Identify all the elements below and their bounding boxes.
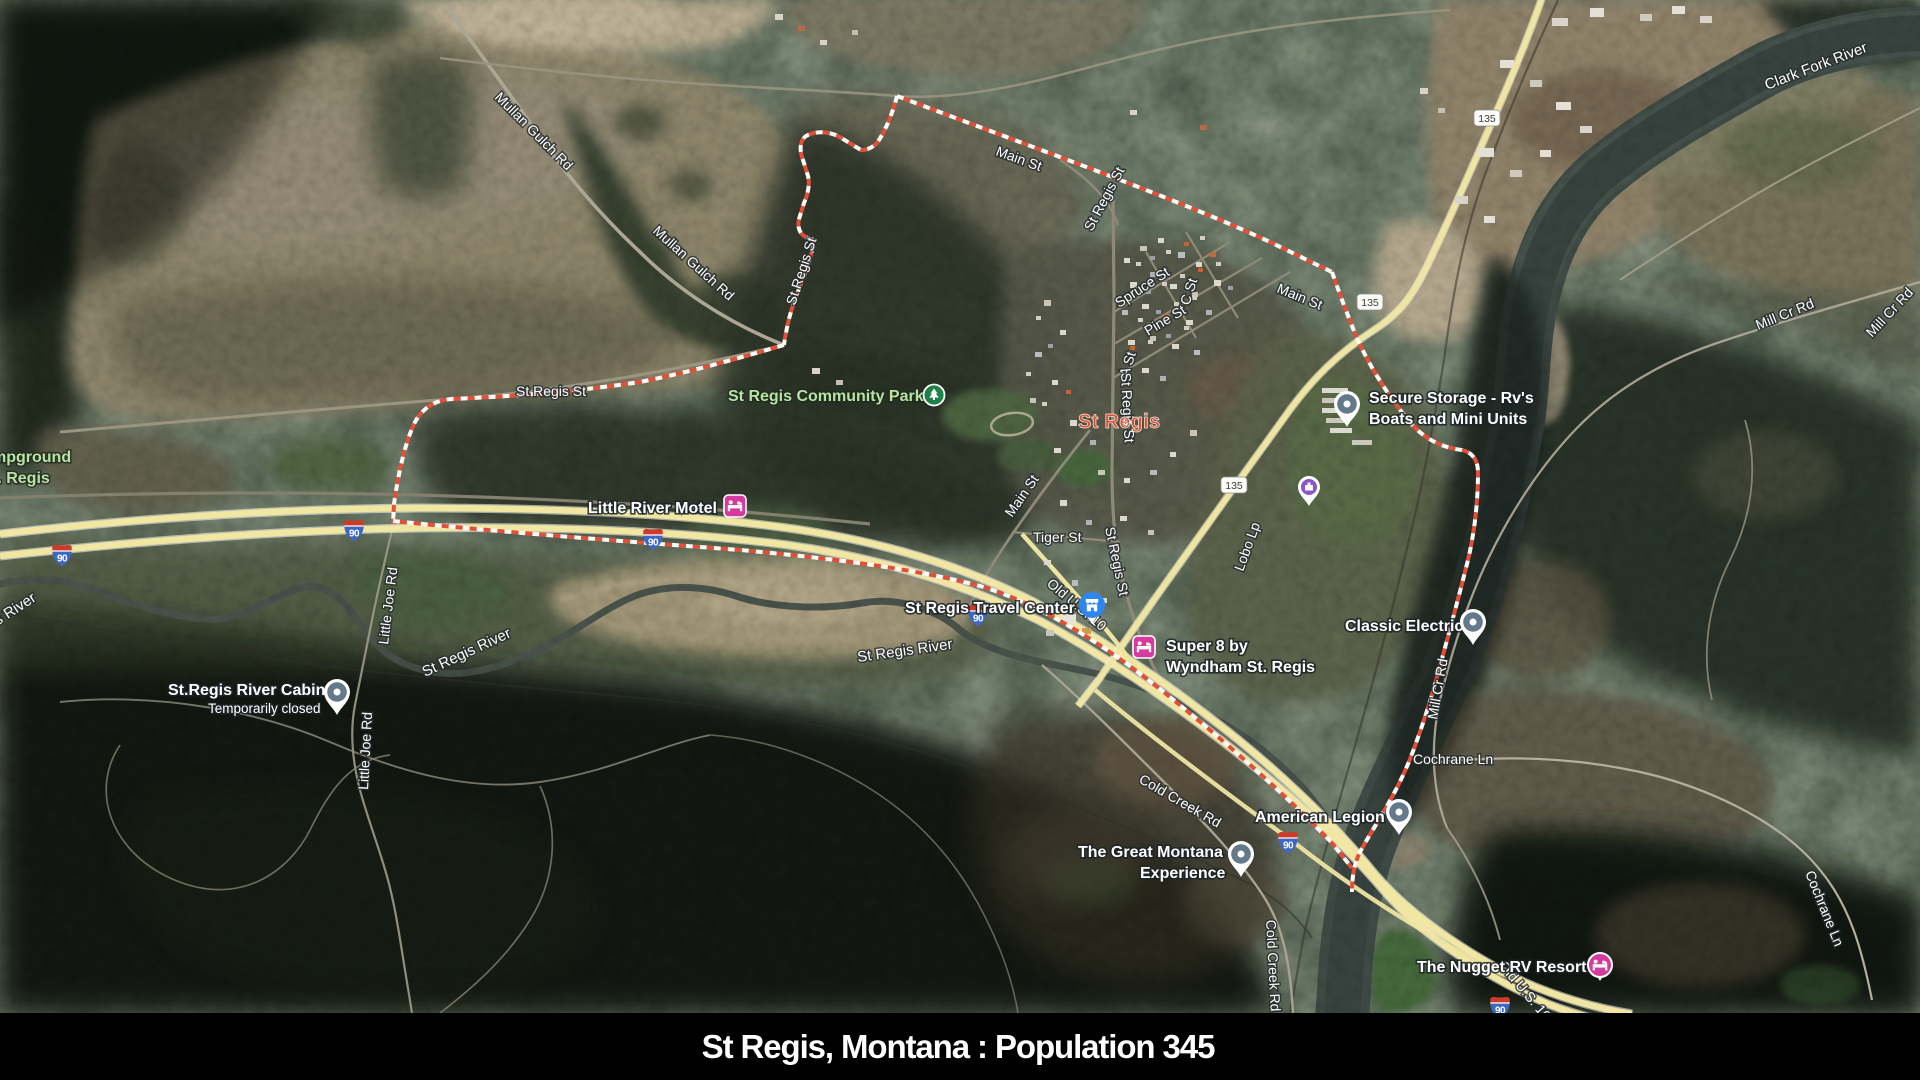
svg-text:Cochrane Ln: Cochrane Ln	[1413, 751, 1493, 767]
svg-text:Experience: Experience	[1140, 865, 1225, 882]
svg-text:Tiger St: Tiger St	[1033, 529, 1082, 545]
svg-text:The Nugget RV Resort: The Nugget RV Resort	[1417, 959, 1587, 976]
svg-text:St Regis St: St Regis St	[516, 383, 586, 399]
svg-text:Classic Electric: Classic Electric	[1345, 618, 1463, 635]
svg-text:Secure Storage - Rv's: Secure Storage - Rv's	[1369, 390, 1534, 407]
svg-text:St.Regis River Cabin: St.Regis River Cabin	[168, 682, 325, 699]
svg-text:mpground: mpground	[0, 449, 71, 466]
svg-text:St Regis: St Regis	[1078, 411, 1160, 433]
svg-text:St Regis Travel Center: St Regis Travel Center	[905, 600, 1075, 617]
svg-text:The Great Montana: The Great Montana	[1078, 844, 1223, 861]
svg-text:Super 8 by: Super 8 by	[1166, 638, 1248, 655]
svg-text:Little River Motel: Little River Motel	[588, 500, 717, 517]
svg-text:Boats and Mini Units: Boats and Mini Units	[1369, 411, 1527, 428]
svg-text:St Regis Community Park: St Regis Community Park	[728, 388, 924, 405]
svg-text:t. Regis: t. Regis	[0, 470, 50, 487]
svg-text:St Regis, Montana : Population: St Regis, Montana : Population 345	[702, 1028, 1215, 1065]
svg-text:American Legion: American Legion	[1255, 809, 1385, 826]
svg-text:Wyndham St. Regis: Wyndham St. Regis	[1166, 659, 1315, 676]
svg-text:Temporarily closed: Temporarily closed	[208, 701, 321, 716]
